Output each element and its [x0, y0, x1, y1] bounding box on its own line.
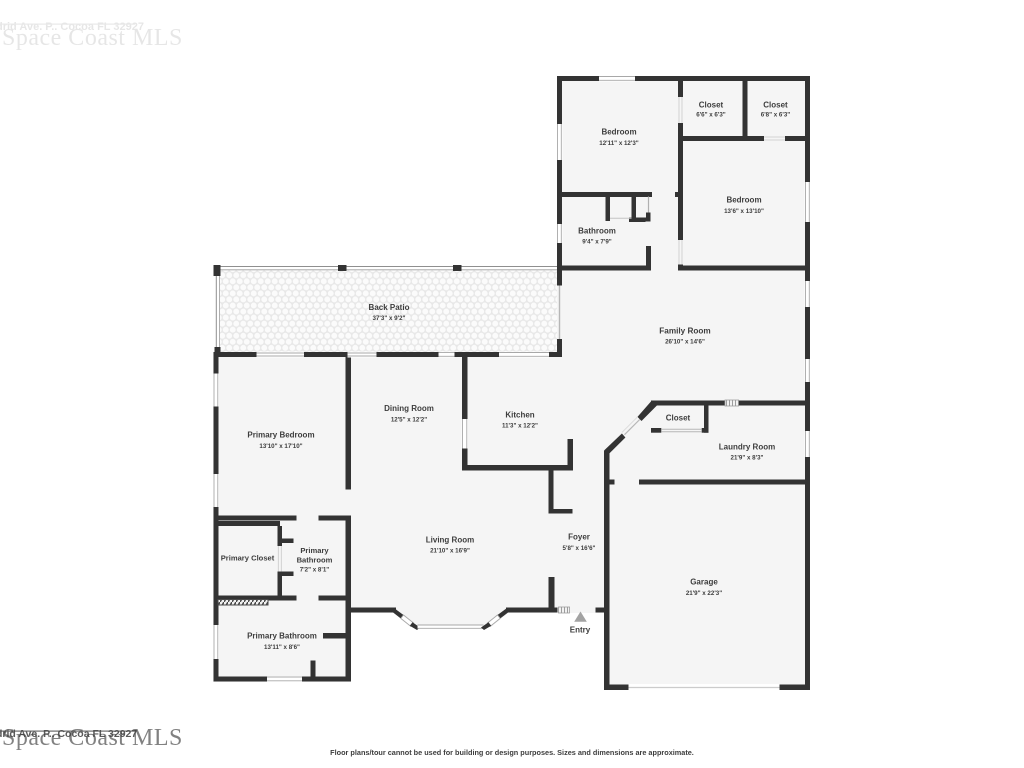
svg-text:Foyer: Foyer — [568, 533, 590, 542]
svg-text:Dining Room: Dining Room — [384, 404, 434, 413]
svg-text:Primary Closet: Primary Closet — [221, 554, 275, 563]
svg-text:12'5" x 12'2": 12'5" x 12'2" — [391, 417, 427, 424]
svg-text:Bathroom: Bathroom — [578, 227, 616, 236]
svg-text:Family Room: Family Room — [659, 327, 710, 336]
svg-text:Primary Bathroom: Primary Bathroom — [247, 632, 317, 641]
svg-text:drid Ave. P.. Cocoa FL 32927: drid Ave. P.. Cocoa FL 32927 — [0, 728, 137, 740]
svg-text:6'8" x 6'3": 6'8" x 6'3" — [761, 112, 791, 119]
svg-text:5'8" x 16'6": 5'8" x 16'6" — [563, 545, 596, 552]
svg-text:9'4" x 7'9": 9'4" x 7'9" — [582, 239, 612, 246]
svg-text:Closet: Closet — [699, 101, 724, 110]
svg-text:26'10" x 14'6": 26'10" x 14'6" — [665, 339, 705, 346]
svg-text:13'10" x 17'10": 13'10" x 17'10" — [259, 443, 302, 450]
svg-text:Kitchen: Kitchen — [505, 411, 534, 420]
svg-text:Bathroom: Bathroom — [297, 556, 333, 565]
svg-text:12'11" x 12'3": 12'11" x 12'3" — [599, 140, 639, 147]
svg-text:21'10" x 16'9": 21'10" x 16'9" — [430, 548, 470, 555]
svg-text:11'3" x 12'2": 11'3" x 12'2" — [502, 423, 538, 430]
svg-text:Bedroom: Bedroom — [601, 128, 636, 137]
svg-text:21'9" x 8'3": 21'9" x 8'3" — [731, 455, 764, 462]
svg-text:drid Ave. P.. Cocoa FL 32927: drid Ave. P.. Cocoa FL 32927 — [0, 21, 144, 33]
svg-text:37'3" x 9'2": 37'3" x 9'2" — [373, 315, 406, 322]
svg-text:Living Room: Living Room — [426, 536, 474, 545]
svg-text:Laundry Room: Laundry Room — [719, 443, 775, 452]
svg-text:6'6" x 6'3": 6'6" x 6'3" — [696, 112, 726, 119]
svg-text:13'6" x 13'10": 13'6" x 13'10" — [724, 208, 764, 215]
svg-text:Closet: Closet — [763, 101, 788, 110]
svg-text:Garage: Garage — [690, 578, 718, 587]
svg-text:Primary: Primary — [300, 546, 329, 555]
svg-text:Back Patio: Back Patio — [369, 303, 410, 312]
svg-text:Floor plans/tour cannot be use: Floor plans/tour cannot be used for buil… — [330, 748, 694, 757]
svg-text:Closet: Closet — [666, 414, 691, 423]
svg-text:Bedroom: Bedroom — [726, 196, 761, 205]
svg-text:13'11" x 8'6": 13'11" x 8'6" — [264, 644, 300, 651]
svg-text:Primary Bedroom: Primary Bedroom — [247, 431, 314, 440]
svg-text:21'9" x 22'3": 21'9" x 22'3" — [686, 590, 722, 597]
svg-text:7'2" x 8'1": 7'2" x 8'1" — [300, 567, 330, 574]
svg-text:Entry: Entry — [570, 626, 591, 635]
